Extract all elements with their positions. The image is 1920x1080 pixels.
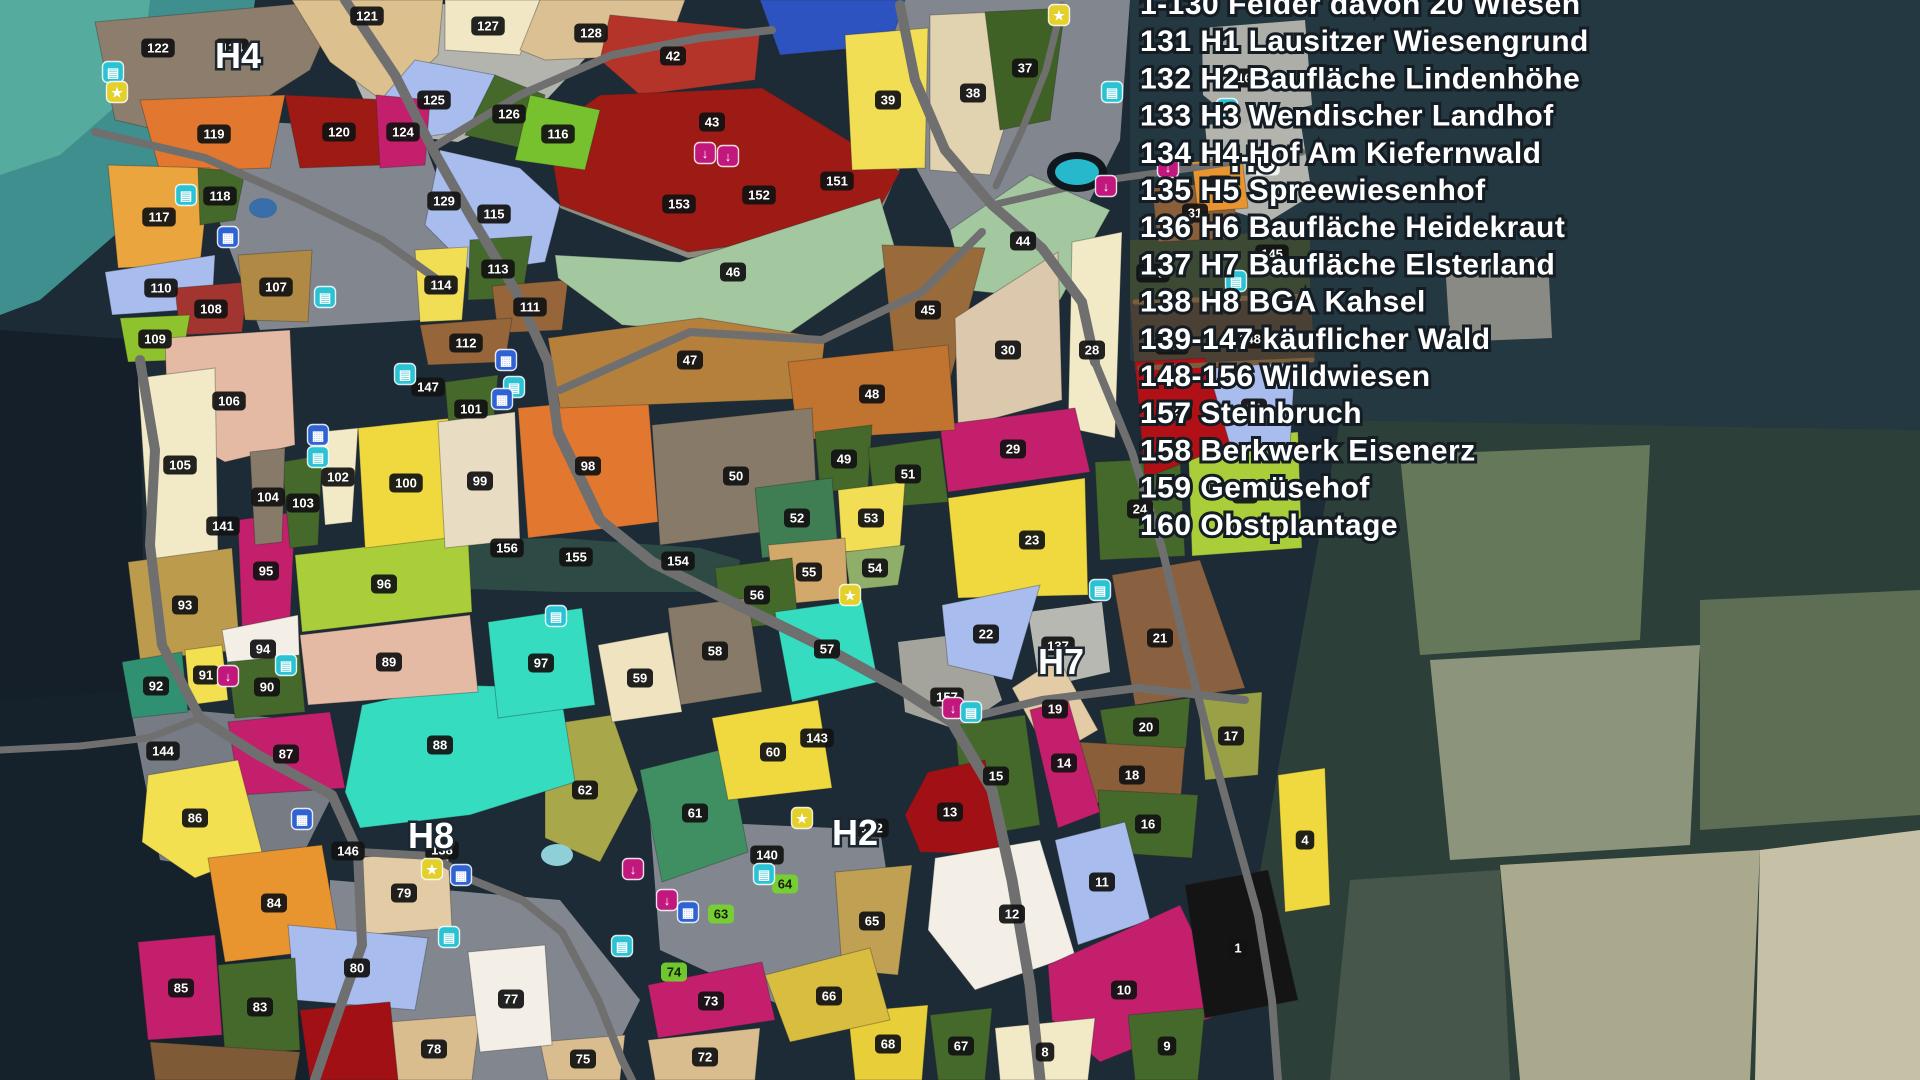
label-text: 119 [204, 127, 225, 142]
label-text: 74 [667, 965, 682, 980]
terrain-patch [1755, 830, 1920, 1080]
field-label-96: 96 [371, 575, 397, 594]
label-text: 22 [979, 627, 993, 642]
field-label-89: 89 [376, 653, 402, 672]
map-poi-cyan-icon: ▤ [612, 936, 633, 957]
label-text: 49 [837, 452, 851, 467]
field-label-75: 75 [570, 1050, 596, 1069]
field-label-42: 42 [660, 47, 686, 66]
pond [1055, 159, 1099, 185]
map-poi-magenta-icon: ↓ [657, 890, 678, 911]
field-label-154: 154 [661, 552, 695, 571]
map-poi-cyan-icon: ▤ [176, 185, 197, 206]
field-label-19: 19 [1042, 700, 1068, 719]
field-label-52: 52 [784, 509, 810, 528]
field-label-90: 90 [254, 678, 280, 697]
field-label-58: 58 [702, 642, 728, 661]
field-label-97: 97 [528, 654, 554, 673]
field-label-128: 128 [574, 24, 608, 43]
field-label-125: 125 [417, 91, 451, 110]
label-text: 29 [1006, 442, 1020, 457]
field-label-4: 4 [1296, 831, 1315, 850]
label-text: 54 [868, 561, 883, 576]
label-text: 102 [327, 470, 349, 485]
field-label-85: 85 [168, 979, 194, 998]
field-23 [948, 478, 1088, 598]
field-label-15: 15 [983, 767, 1009, 786]
field-label-141: 141 [206, 517, 240, 536]
label-text: 61 [688, 806, 702, 821]
field-label-53: 53 [858, 509, 884, 528]
field-label-10: 10 [1111, 981, 1137, 1000]
field-label-115: 115 [477, 205, 511, 224]
legend-line: 160 Obstplantage [1140, 509, 1398, 542]
label-text: 46 [726, 265, 740, 280]
field-label-8: 8 [1036, 1043, 1055, 1062]
label-text: 140 [756, 848, 778, 863]
label-text: 120 [328, 125, 350, 140]
icon-glyph: ▦ [312, 428, 324, 443]
field-label-104: 104 [251, 488, 285, 507]
field-label-38: 38 [960, 84, 986, 103]
field-label-28: 28 [1079, 341, 1105, 360]
map-poi-magenta-icon: ↓ [718, 146, 739, 167]
legend-line: 159 Gemüsehof [1140, 472, 1370, 505]
field-label-118: 118 [203, 187, 237, 206]
map-poi-blue-icon: ▦ [292, 809, 313, 830]
field-label-47: 47 [677, 351, 703, 370]
icon-glyph: ▦ [296, 812, 308, 827]
label-text: 73 [704, 994, 718, 1009]
field-label-65: 65 [859, 912, 885, 931]
field-label-111: 111 [513, 298, 547, 317]
label-text: 88 [433, 738, 447, 753]
field-label-126: 126 [492, 105, 526, 124]
label-text: 39 [881, 93, 895, 108]
map-poi-blue-icon: ▦ [496, 350, 517, 371]
field-label-155: 155 [559, 548, 593, 567]
label-text: 30 [1001, 343, 1015, 358]
legend-line: 138 H8 BGA Kahsel [1140, 286, 1426, 319]
label-text: 92 [149, 679, 163, 694]
icon-glyph: ▤ [399, 367, 411, 382]
legend-line: 131 H1 Lausitzer Wiesengrund [1140, 25, 1589, 58]
label-text: 16 [1141, 817, 1155, 832]
map-poi-blue-icon: ▦ [451, 865, 472, 886]
field-label-117: 117 [142, 208, 176, 227]
field-label-83: 83 [247, 998, 273, 1017]
icon-glyph: ▤ [1106, 85, 1118, 100]
icon-glyph: ▤ [319, 290, 331, 305]
label-text: 55 [802, 565, 816, 580]
label-text: 84 [267, 896, 282, 911]
label-text: 112 [456, 336, 477, 351]
field-label-146: 146 [331, 842, 365, 861]
field-label-88: 88 [427, 736, 453, 755]
field-label-112: 112 [449, 334, 483, 353]
map-poi-cyan-icon: ▤ [103, 62, 124, 83]
label-text: 4 [1301, 833, 1309, 848]
label-text: 53 [864, 511, 878, 526]
label-text: 103 [292, 496, 314, 511]
label-text: 63 [714, 907, 728, 922]
field-label-127: 127 [471, 17, 505, 36]
field-label-80: 80 [344, 959, 370, 978]
legend-line: 1-130 Felder davon 20 Wiesen [1140, 0, 1581, 21]
label-text: 147 [417, 380, 439, 395]
legend-line: 137 H7 Baufläche Elsterland [1140, 248, 1555, 281]
label-text: 109 [144, 332, 166, 347]
label-text: 94 [256, 642, 271, 657]
label-text: 95 [259, 564, 273, 579]
label-text: 113 [488, 262, 509, 277]
field-label-1: 1 [1229, 939, 1248, 958]
field-label-67: 67 [948, 1037, 974, 1056]
label-text: 79 [397, 886, 411, 901]
icon-glyph: ▤ [758, 867, 770, 882]
field-label-62: 62 [572, 781, 598, 800]
label-text: 58 [708, 644, 722, 659]
field-label-129: 129 [427, 192, 461, 211]
legend-line: 136 H6 Baufläche Heidekraut [1140, 211, 1565, 244]
map-poi-cyan-icon: ▤ [1090, 580, 1111, 601]
field-label-51: 51 [895, 465, 921, 484]
field-label-60: 60 [760, 743, 786, 762]
label-text: 51 [901, 467, 915, 482]
field-label-48: 48 [859, 385, 885, 404]
field-label-74: 74 [661, 963, 687, 982]
label-text: 89 [382, 655, 396, 670]
label-text: 154 [667, 554, 689, 569]
field-label-151: 151 [820, 172, 854, 191]
field-label-86: 86 [182, 809, 208, 828]
icon-glyph: ▤ [107, 65, 119, 80]
label-text: 12 [1005, 907, 1019, 922]
label-text: 143 [806, 731, 828, 746]
icon-glyph: ↓ [630, 862, 637, 877]
icon-glyph: ▦ [496, 392, 508, 407]
legend-line: 132 H2 Baufläche Lindenhöhe [1140, 62, 1580, 95]
field-label-116: 116 [541, 125, 575, 144]
icon-glyph: ▦ [222, 230, 234, 245]
field-label-120: 120 [322, 123, 356, 142]
pond [249, 198, 277, 218]
label-text: 20 [1139, 720, 1153, 735]
field-label-92: 92 [143, 677, 169, 696]
icon-glyph: ▤ [180, 188, 192, 203]
terrain-patch [1330, 870, 1510, 1080]
map-poi-magenta-icon: ↓ [1096, 176, 1117, 197]
pond [541, 844, 573, 866]
label-text: 18 [1125, 768, 1139, 783]
terrain-patch [1430, 645, 1700, 860]
map-poi-magenta-icon: ↓ [218, 666, 239, 687]
legend-line: 148-156 Wildwiesen [1140, 360, 1431, 393]
field-label-64: 64 [772, 875, 798, 894]
label-text: 155 [565, 550, 587, 565]
label-text: 65 [865, 914, 879, 929]
label-text: 144 [152, 744, 174, 759]
map-poi-magenta-icon: ↓ [623, 859, 644, 880]
label-text: 114 [431, 278, 453, 293]
label-text: 72 [698, 1050, 712, 1065]
label-text: 59 [633, 671, 647, 686]
legend-line: 134 H4 Hof Am Kiefernwald [1140, 137, 1542, 170]
icon-glyph: ▤ [1094, 583, 1106, 598]
label-text: 105 [169, 458, 191, 473]
label-text: 156 [496, 541, 518, 556]
label-text: 99 [473, 474, 487, 489]
map-poi-cyan-icon: ▤ [315, 287, 336, 308]
label-text: 8 [1041, 1045, 1048, 1060]
label-text: 146 [337, 844, 359, 859]
label-text: 110 [151, 281, 172, 296]
map-poi-cyan-icon: ▤ [1102, 82, 1123, 103]
icon-glyph: ★ [426, 862, 438, 877]
icon-glyph: ↓ [725, 149, 732, 164]
hub-marker-h8: H8 [408, 815, 454, 856]
field-label-44: 44 [1010, 232, 1036, 251]
label-text: 14 [1057, 756, 1072, 771]
terrain-patch [1500, 850, 1760, 1080]
terrain-patch [1700, 590, 1920, 830]
label-text: 98 [581, 459, 595, 474]
field-label-56: 56 [744, 586, 770, 605]
field-label-17: 17 [1218, 727, 1244, 746]
field-label-105: 105 [163, 456, 197, 475]
legend-line: 139-147 käuflicher Wald [1140, 323, 1491, 356]
field-label-50: 50 [723, 467, 749, 486]
field-label-153: 153 [662, 195, 696, 214]
label-text: 11 [1095, 875, 1109, 890]
field-label-68: 68 [875, 1035, 901, 1054]
field-label-101: 101 [454, 400, 488, 419]
map-poi-yellow-icon: ★ [422, 859, 443, 880]
field-label-106: 106 [212, 392, 246, 411]
label-text: 15 [989, 769, 1003, 784]
hub-marker-h7: H7 [1038, 641, 1084, 682]
field-label-73: 73 [698, 992, 724, 1011]
label-text: 56 [750, 588, 764, 603]
label-text: 87 [279, 747, 293, 762]
icon-glyph: ▤ [280, 658, 292, 673]
label-text: 111 [520, 300, 540, 315]
label-text: 152 [748, 188, 770, 203]
label-text: 62 [578, 783, 592, 798]
map-poi-yellow-icon: ★ [840, 585, 861, 606]
field-label-37: 37 [1012, 59, 1038, 78]
field-label-9: 9 [1158, 1037, 1177, 1056]
label-text: 66 [822, 989, 836, 1004]
icon-glyph: ▤ [312, 450, 324, 465]
label-text: 86 [188, 811, 202, 826]
field-label-29: 29 [1000, 440, 1026, 459]
map-poi-magenta-icon: ↓ [695, 143, 716, 164]
field-label-49: 49 [831, 450, 857, 469]
field-label-114: 114 [424, 276, 458, 295]
label-text: 37 [1018, 61, 1032, 76]
field-label-21: 21 [1147, 629, 1173, 648]
field-label-122: 122 [141, 39, 175, 58]
field-label-95: 95 [253, 562, 279, 581]
field-label-43: 43 [699, 113, 725, 132]
icon-glyph: ↓ [1103, 179, 1110, 194]
map-poi-yellow-icon: ★ [1049, 5, 1070, 26]
map-poi-cyan-icon: ▤ [308, 447, 329, 468]
label-text: 45 [921, 303, 935, 318]
label-text: 10 [1117, 983, 1131, 998]
label-text: 127 [477, 19, 499, 34]
label-text: 116 [548, 127, 569, 142]
label-text: 44 [1016, 234, 1031, 249]
legend-line: 133 H3 Wendischer Landhof [1140, 100, 1554, 133]
field-label-11: 11 [1089, 873, 1115, 892]
label-text: 23 [1025, 533, 1039, 548]
label-text: 115 [484, 207, 505, 222]
field-label-110: 110 [144, 279, 178, 298]
field-label-12: 12 [999, 905, 1025, 924]
icon-glyph: ↓ [664, 893, 671, 908]
field-label-55: 55 [796, 563, 822, 582]
field-label-113: 113 [481, 260, 515, 279]
icon-glyph: ★ [844, 588, 856, 603]
field-label-91: 91 [193, 666, 219, 685]
label-text: 122 [147, 41, 169, 56]
field-label-77: 77 [498, 990, 524, 1009]
field-label-16: 16 [1135, 815, 1161, 834]
label-text: 90 [260, 680, 274, 695]
icon-glyph: ▤ [965, 705, 977, 720]
label-text: 50 [729, 469, 743, 484]
label-text: 108 [200, 302, 222, 317]
label-text: 128 [580, 26, 602, 41]
field-label-59: 59 [627, 669, 653, 688]
field-label-79: 79 [391, 884, 417, 903]
field-label-20: 20 [1133, 718, 1159, 737]
label-text: 48 [865, 387, 879, 402]
field-label-61: 61 [682, 804, 708, 823]
label-text: 9 [1163, 1039, 1170, 1054]
label-text: 77 [504, 992, 518, 1007]
label-text: 38 [966, 86, 980, 101]
label-text: 117 [149, 210, 170, 225]
legend-line: 157 Steinbruch [1140, 397, 1362, 430]
field-label-100: 100 [389, 474, 423, 493]
field-label-66: 66 [816, 987, 842, 1006]
terrain-patch [1400, 445, 1650, 655]
label-text: 19 [1048, 702, 1062, 717]
field-label-14: 14 [1051, 754, 1077, 773]
label-text: 52 [790, 511, 804, 526]
field-label-124: 124 [386, 123, 420, 142]
label-text: 141 [212, 519, 234, 534]
icon-glyph: ▦ [455, 868, 467, 883]
icon-glyph: ★ [796, 811, 808, 826]
field-label-143: 143 [800, 729, 834, 748]
label-text: 28 [1085, 343, 1099, 358]
field-label-30: 30 [995, 341, 1021, 360]
field-label-108: 108 [194, 300, 228, 319]
field-label-107: 107 [259, 278, 293, 297]
label-text: 42 [666, 49, 680, 64]
field-label-13: 13 [937, 803, 963, 822]
icon-glyph: ★ [1053, 8, 1065, 23]
field-label-119: 119 [197, 125, 231, 144]
label-text: 118 [210, 189, 231, 204]
field-label-45: 45 [915, 301, 941, 320]
label-text: 75 [576, 1052, 590, 1067]
farm-map: 1221211271284243125126116115119120124117… [0, 0, 1920, 1080]
field-label-78: 78 [421, 1040, 447, 1059]
field-label-87: 87 [273, 745, 299, 764]
field-label-140: 140 [750, 846, 784, 865]
field-label-152: 152 [742, 186, 776, 205]
field-label-84: 84 [261, 894, 287, 913]
label-text: 43 [705, 115, 719, 130]
label-text: 85 [174, 981, 188, 996]
icon-glyph: ↓ [225, 669, 232, 684]
label-text: 106 [218, 394, 240, 409]
label-text: 60 [766, 745, 780, 760]
legend-line: 158 Berkwerk Eisenerz [1140, 434, 1476, 467]
field-label-98: 98 [575, 457, 601, 476]
icon-glyph: ▦ [500, 353, 512, 368]
map-poi-cyan-icon: ▤ [276, 655, 297, 676]
label-text: 13 [943, 805, 957, 820]
label-text: 126 [498, 107, 520, 122]
label-text: 97 [534, 656, 548, 671]
label-text: 129 [433, 194, 455, 209]
field-label-57: 57 [814, 640, 840, 659]
label-text: 47 [683, 353, 697, 368]
label-text: 78 [427, 1042, 441, 1057]
field-label-93: 93 [172, 596, 198, 615]
map-poi-yellow-icon: ★ [107, 82, 128, 103]
icon-glyph: ▤ [616, 939, 628, 954]
label-text: 64 [778, 877, 793, 892]
icon-glyph: ★ [111, 85, 123, 100]
field-label-22: 22 [973, 625, 999, 644]
field-label-63: 63 [708, 905, 734, 924]
label-text: 125 [423, 93, 445, 108]
field-label-72: 72 [692, 1048, 718, 1067]
label-text: 100 [395, 476, 417, 491]
label-text: 153 [668, 197, 690, 212]
field-label-144: 144 [146, 742, 180, 761]
map-poi-yellow-icon: ★ [792, 808, 813, 829]
label-text: 83 [253, 1000, 267, 1015]
hub-marker-h4: H4 [215, 35, 261, 76]
field-label-39: 39 [875, 91, 901, 110]
map-poi-blue-icon: ▦ [492, 389, 513, 410]
icon-glyph: ↓ [950, 701, 957, 716]
label-text: 96 [377, 577, 391, 592]
label-text: 104 [257, 490, 279, 505]
label-text: 80 [350, 961, 364, 976]
field-label-156: 156 [490, 539, 524, 558]
label-text: 1 [1234, 941, 1241, 956]
label-text: 151 [826, 174, 848, 189]
map-poi-blue-icon: ▦ [678, 902, 699, 923]
field-label-102: 102 [321, 468, 355, 487]
icon-glyph: ▤ [550, 609, 562, 624]
field-label-99: 99 [467, 472, 493, 491]
label-text: 91 [199, 668, 213, 683]
label-text: 121 [356, 9, 378, 24]
field-label-121: 121 [350, 7, 384, 26]
field-label-147: 147 [411, 378, 445, 397]
map-poi-cyan-icon: ▤ [395, 364, 416, 385]
